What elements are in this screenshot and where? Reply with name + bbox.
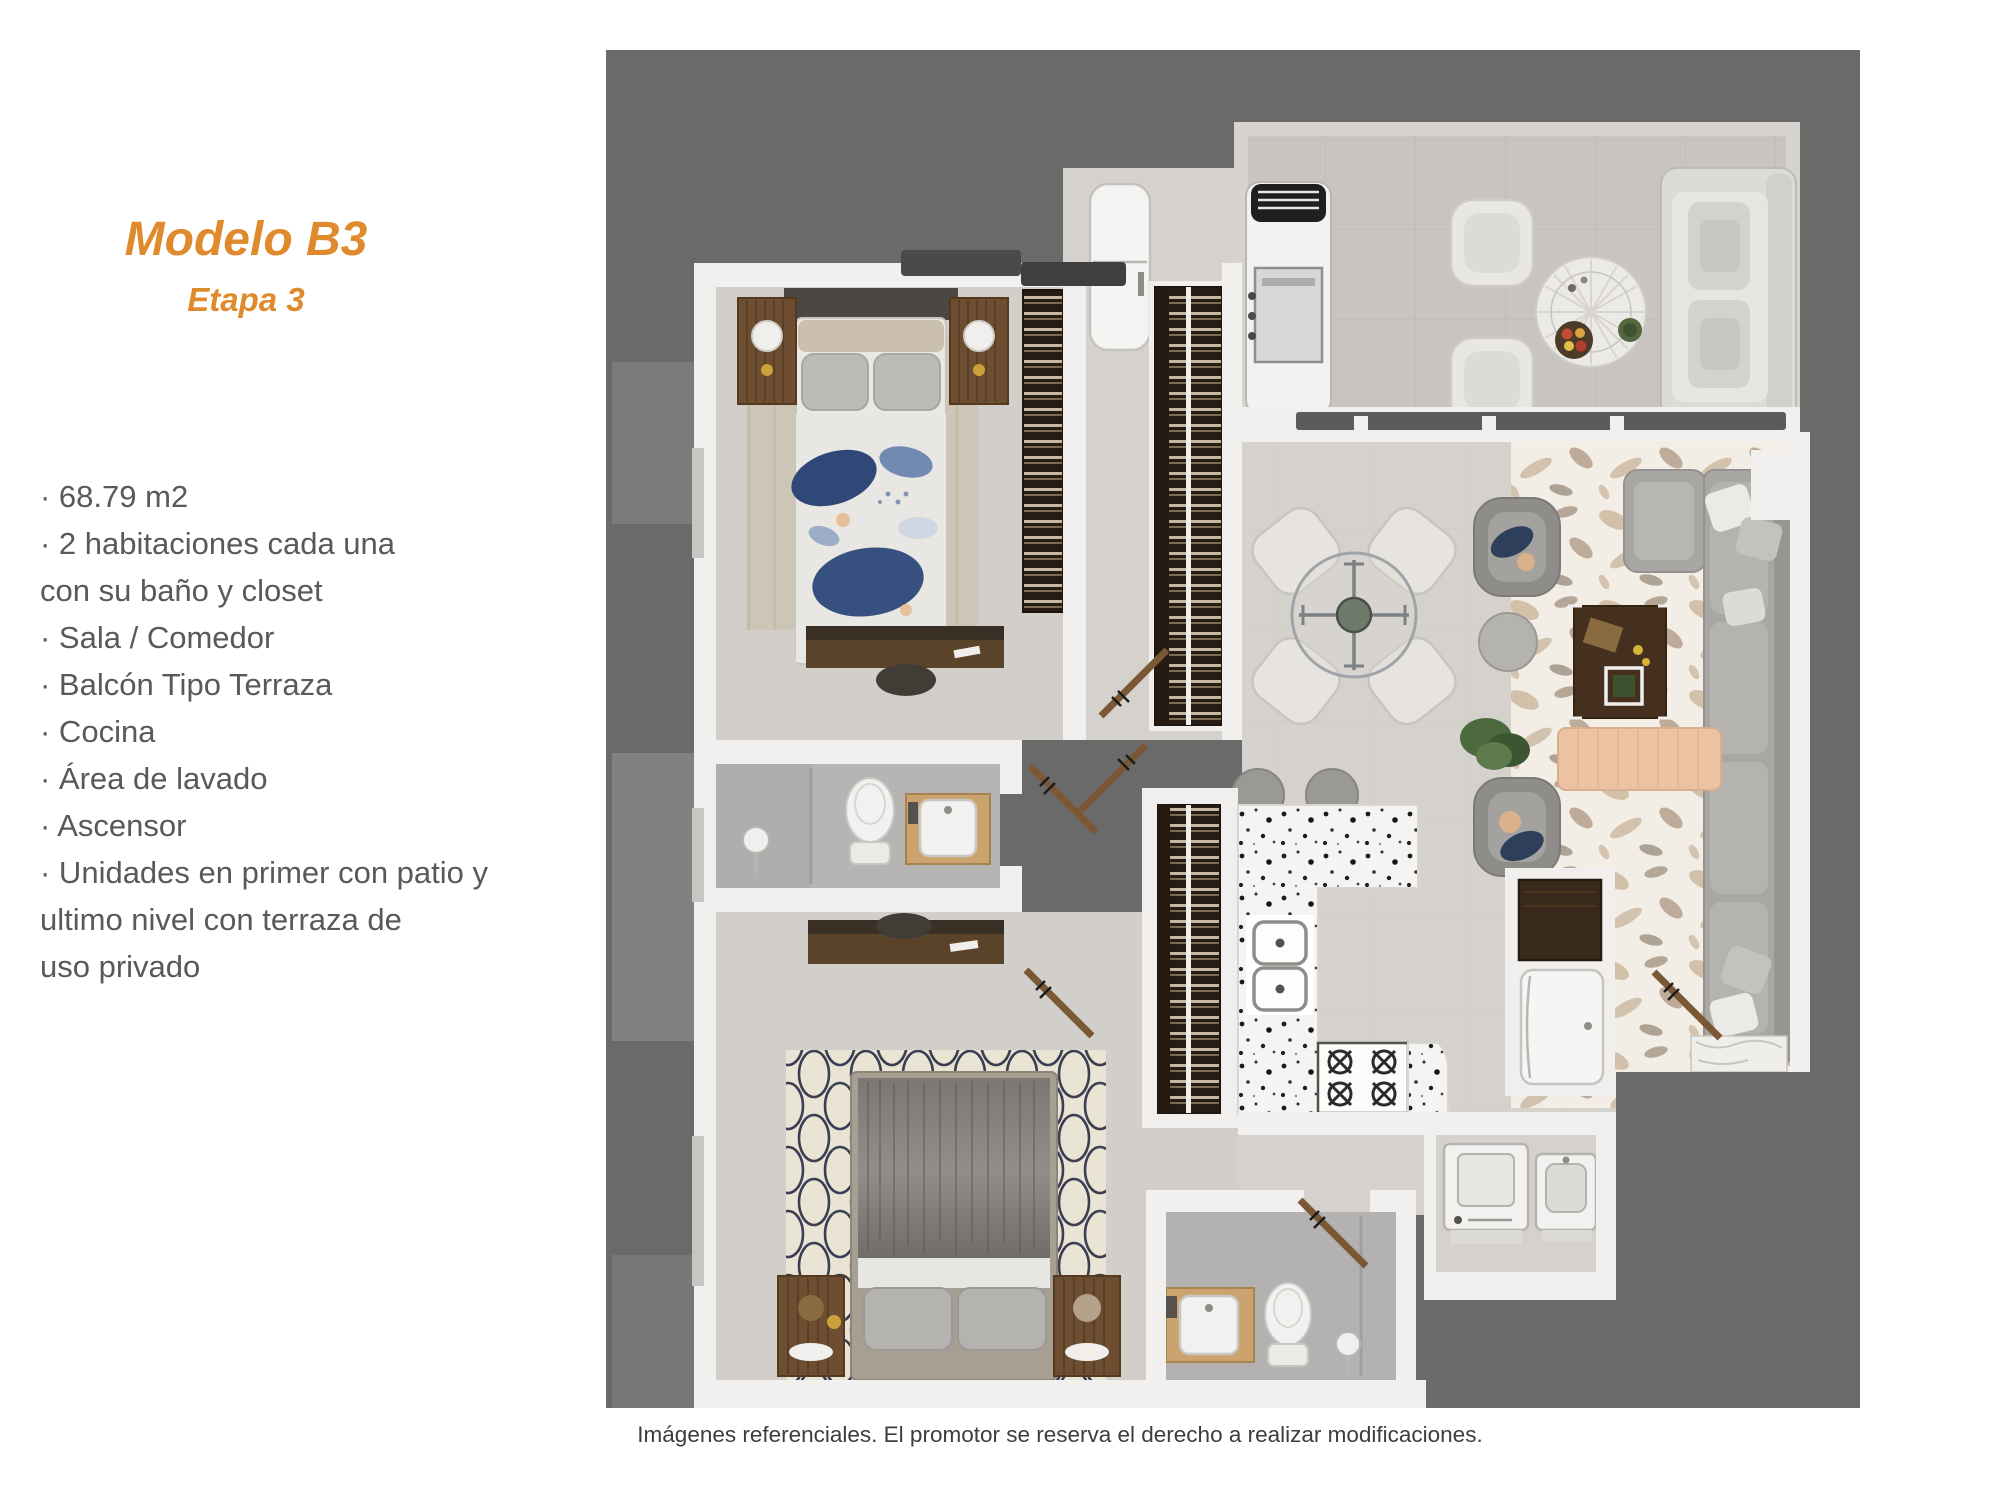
feature-line: · Cocina — [40, 708, 600, 755]
toilet — [846, 778, 894, 864]
appliance-white — [1521, 970, 1603, 1084]
terrace-chair — [1451, 200, 1533, 286]
feature-list: · 68.79 m2 · 2 habitaciones cada una con… — [40, 473, 600, 990]
bench — [1558, 728, 1721, 790]
patio-round-table — [1536, 257, 1646, 367]
nightstand — [950, 298, 1008, 404]
feature-line: · 2 habitaciones cada una — [40, 520, 600, 567]
feature-line: · Sala / Comedor — [40, 614, 600, 661]
headboard — [784, 288, 958, 320]
marble-shower-pan — [1691, 1036, 1787, 1072]
feature-line: · Balcón Tipo Terraza — [40, 661, 600, 708]
nightstand — [1054, 1276, 1120, 1376]
brochure-page: { "page": { "title": "Modelo B3", "subti… — [0, 0, 2000, 1500]
laundry-area — [1444, 1144, 1596, 1244]
stove — [1318, 1043, 1448, 1113]
bedroom1-closet — [1023, 290, 1063, 612]
vanity-sink — [1166, 1288, 1254, 1362]
nightstand — [738, 298, 796, 404]
toilet — [1265, 1283, 1311, 1366]
page-subtitle: Etapa 3 — [38, 281, 454, 319]
feature-line: · Unidades en primer con patio y — [40, 849, 600, 896]
laundry-tub — [1536, 1154, 1596, 1242]
blue-duvet — [784, 414, 946, 662]
title-block: Modelo B3 Etapa 3 — [38, 212, 454, 319]
vanity-sink — [906, 794, 990, 864]
disclaimer-caption: Imágenes referenciales. El promotor se r… — [540, 1422, 1580, 1448]
page-title: Modelo B3 — [38, 212, 454, 267]
coffee-table — [1568, 606, 1672, 718]
bbq-grill — [1246, 182, 1331, 414]
side-table — [1479, 613, 1537, 671]
desk — [808, 913, 1004, 964]
feature-line: uso privado — [40, 943, 600, 990]
washer — [1444, 1144, 1528, 1244]
outdoor-sofa — [1661, 168, 1796, 425]
feature-line: con su baño y closet — [40, 567, 600, 614]
armchair — [1474, 778, 1560, 876]
bed-1 — [784, 318, 946, 664]
armchair — [1474, 498, 1560, 596]
feature-line: · Área de lavado — [40, 755, 600, 802]
floorplan-panel — [606, 50, 1860, 1408]
feature-line: · Ascensor — [40, 802, 600, 849]
nightstand — [778, 1276, 844, 1376]
bed-2 — [851, 1072, 1057, 1380]
floorplan-image — [606, 50, 1860, 1408]
feature-line: ultimo nivel con terraza de — [40, 896, 600, 943]
feature-line: · 68.79 m2 — [40, 473, 600, 520]
